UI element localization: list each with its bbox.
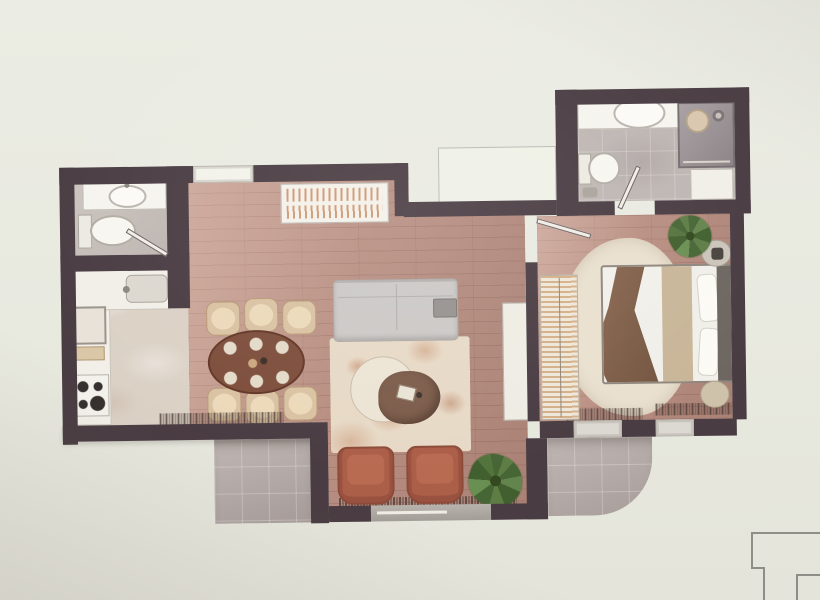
wall: [730, 213, 747, 419]
bathroom-accessories: [582, 187, 597, 197]
wall: [329, 506, 371, 523]
window-bay: [438, 146, 557, 205]
entry-terrace-floor: [214, 438, 311, 523]
oven: [72, 306, 107, 344]
wall: [655, 199, 751, 214]
sliding-glass-door: [371, 504, 491, 522]
dining-table-setting: [209, 332, 303, 393]
wall: [253, 163, 408, 182]
floor-plan-photo: [0, 0, 820, 600]
dining-chair: [244, 298, 278, 332]
armchair-left: [337, 446, 395, 505]
wall: [694, 418, 737, 436]
window: [193, 165, 253, 183]
wall: [60, 254, 189, 272]
sofa-tray: [433, 298, 457, 317]
sideboard: [280, 182, 389, 224]
shower-icon: [677, 101, 735, 168]
wall: [734, 87, 751, 213]
armchair-right: [406, 445, 464, 504]
wall: [310, 422, 329, 523]
cutting-board: [75, 346, 105, 360]
bed-runner: [662, 266, 694, 384]
bedroom-window: [574, 420, 622, 438]
key-plan-outline: [744, 524, 820, 600]
bedroom-window: [656, 419, 694, 437]
wall: [404, 200, 557, 217]
wall: [555, 87, 749, 105]
wall: [166, 166, 190, 308]
dining-chair: [206, 301, 240, 335]
bathroom-cabinet: [690, 168, 733, 200]
open-wardrobe: [540, 275, 580, 421]
wall: [540, 421, 574, 438]
bedroom-terrace-floor: [547, 437, 653, 516]
apartment-floor-plan: [0, 0, 820, 600]
wall: [525, 262, 539, 421]
wall: [622, 420, 656, 437]
kitchen-sink: [126, 274, 168, 303]
wall: [526, 438, 548, 519]
double-bed: [601, 263, 735, 384]
dining-chair: [282, 300, 316, 334]
wall: [557, 201, 615, 216]
wall: [555, 90, 579, 216]
dining-chair: [283, 386, 317, 420]
